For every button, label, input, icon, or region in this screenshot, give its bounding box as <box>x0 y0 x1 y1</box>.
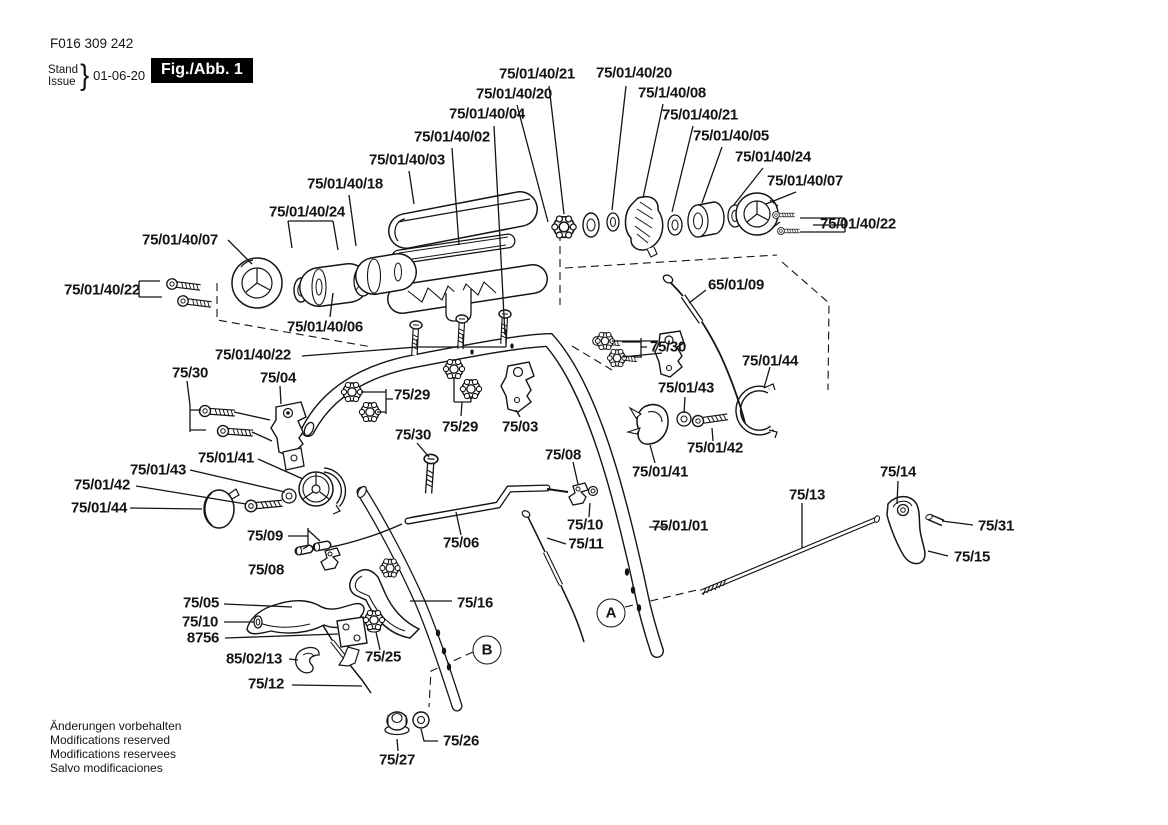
part-label: 75/01/40/06 <box>287 319 363 336</box>
cap-screw-1 <box>773 212 795 219</box>
part-label: 75/06 <box>443 535 479 552</box>
part-label: 75/08 <box>248 562 284 579</box>
cable-clamp-right <box>569 483 598 505</box>
castle-nut <box>552 216 576 238</box>
flange-nut-75-27 <box>385 712 409 735</box>
lever-bracket-8756 <box>337 617 367 666</box>
part-label: 75/01/42 <box>687 440 743 457</box>
part-label: 75/01/40/20 <box>476 86 552 103</box>
ratchet-cam <box>625 197 662 257</box>
c-ring-right <box>738 384 777 438</box>
screw-30m <box>422 454 438 494</box>
brace-glyph: } <box>80 58 89 92</box>
screw-30l-2 <box>217 425 253 438</box>
part-label: 75/01/40/21 <box>662 107 738 124</box>
left-end-cap <box>232 258 282 308</box>
washer-right-43 <box>677 412 691 426</box>
part-label: 75/13 <box>789 487 825 504</box>
nut-29d <box>460 379 481 398</box>
clamp-cap-right <box>628 405 668 444</box>
handle-screw-2 <box>454 315 468 350</box>
part-label: 75/01/40/03 <box>369 152 445 169</box>
part-label: 75/08 <box>545 447 581 464</box>
part-label: 75/16 <box>457 595 493 612</box>
part-label: 75/01/01 <box>652 518 708 535</box>
part-label: 75/01/40/18 <box>307 176 383 193</box>
cable-clamp-left <box>321 548 340 570</box>
figure-label: Fig./Abb. 1 <box>151 58 253 83</box>
screw-left-1 <box>166 278 201 292</box>
part-label: 75/15 <box>954 549 990 566</box>
roller-lower-shell <box>402 279 533 321</box>
part-label: 75/31 <box>978 518 1014 535</box>
part-label: 75/10 <box>182 614 218 631</box>
exploded-view-artwork <box>0 0 1168 825</box>
part-label: 75/30 <box>650 339 686 356</box>
part-label: 75/01/40/22 <box>820 216 896 233</box>
cover-disc-left <box>204 489 239 528</box>
bracket-75-03 <box>501 362 534 412</box>
screw-left-2 <box>177 295 212 309</box>
left-roller-sleeve <box>368 259 402 293</box>
part-label: 75/11 <box>568 536 603 553</box>
part-label: 75/01/43 <box>130 462 186 479</box>
part-label: 75/01/44 <box>71 500 127 517</box>
notice-line-en: Modifications reserved <box>50 733 181 747</box>
part-label: 75/26 <box>443 733 479 750</box>
left-roller-bushing <box>312 269 349 305</box>
notice-line-de: Änderungen vorbehalten <box>50 719 181 733</box>
part-label: 75/03 <box>502 419 538 436</box>
part-label: 75/29 <box>394 387 430 404</box>
notice-line-es: Salvo modificaciones <box>50 761 181 775</box>
washer-75-26 <box>413 712 429 728</box>
part-label: 75/01/40/24 <box>735 149 811 166</box>
pulley-washer-left <box>282 489 296 503</box>
clamp-screw-right <box>692 411 729 427</box>
bearing-sleeve <box>688 202 724 237</box>
part-label: 75/1/40/08 <box>638 85 706 102</box>
modifications-notice: Änderungen vorbehalten Modifications res… <box>50 719 181 775</box>
part-label: 75/01/40/22 <box>64 282 140 299</box>
part-label: 65/01/09 <box>708 277 764 294</box>
section-marker-a: A <box>597 599 626 628</box>
part-label: 75/01/40/21 <box>499 66 575 83</box>
part-label: 75/01/41 <box>198 450 254 467</box>
cap-screw-2 <box>778 228 800 235</box>
nut-right-2 <box>607 349 626 366</box>
part-label: 75/01/43 <box>658 380 714 397</box>
part-label: 75/25 <box>365 649 401 666</box>
tension-lever <box>887 497 925 564</box>
parts-diagram-page: F016 309 242 Stand Issue } 01-06-20 Fig.… <box>0 0 1168 825</box>
pulley-screw-left <box>245 498 283 513</box>
section-marker-b: B <box>473 636 502 665</box>
washer-stack <box>583 213 619 237</box>
part-label: 75/01/44 <box>742 353 798 370</box>
part-label: 75/10 <box>567 517 603 534</box>
issue-block: Stand Issue } 01-06-20 <box>48 60 145 91</box>
part-label: 75/01/40/07 <box>767 173 843 190</box>
part-label: 75/01/40/20 <box>596 65 672 82</box>
part-label: 85/02/13 <box>226 651 282 668</box>
part-label: 75/29 <box>442 419 478 436</box>
part-label: 75/01/40/02 <box>414 129 490 146</box>
washer-small <box>668 215 682 235</box>
nut-29c <box>443 359 464 378</box>
notice-line-fr: Modifications reservees <box>50 747 181 761</box>
part-label: 75/14 <box>880 464 916 481</box>
part-label: 75/01/40/22 <box>215 347 291 364</box>
part-label: 75/12 <box>248 676 284 693</box>
cable-pulley-left <box>299 470 343 514</box>
handle-screw-1 <box>408 321 422 356</box>
part-label: 75/01/40/04 <box>449 106 525 123</box>
part-label: 75/30 <box>395 427 431 444</box>
part-label: 75/05 <box>183 595 219 612</box>
part-label: 75/04 <box>260 370 296 387</box>
nut-right-1 <box>595 332 614 349</box>
part-label: 8756 <box>187 630 219 647</box>
part-label: 75/09 <box>247 528 283 545</box>
issue-label: Issue <box>48 76 78 88</box>
bracket-75-04 <box>271 402 306 470</box>
part-label: 75/01/40/07 <box>142 232 218 249</box>
lever-washer <box>254 616 262 628</box>
spring-clip <box>296 648 319 673</box>
part-label: 75/01/40/24 <box>269 204 345 221</box>
part-label: 75/01/40/05 <box>693 128 769 145</box>
cable-barrels <box>296 543 327 555</box>
tension-rod <box>701 515 880 595</box>
clamp-pin <box>925 513 943 523</box>
screw-30l-1 <box>199 405 235 418</box>
part-label: 75/01/42 <box>74 477 130 494</box>
issue-date: 01-06-20 <box>93 68 145 83</box>
stand-label: Stand <box>48 64 78 76</box>
document-part-number: F016 309 242 <box>50 36 133 51</box>
part-label: 75/27 <box>379 752 415 769</box>
part-label: 75/30 <box>172 365 208 382</box>
part-label: 75/01/41 <box>632 464 688 481</box>
